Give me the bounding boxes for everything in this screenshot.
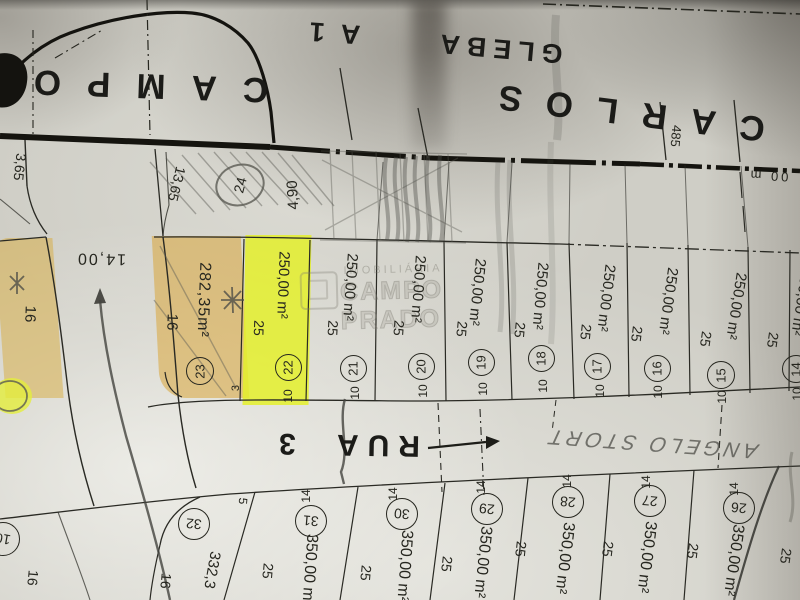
lot-15-side-25: 25 (697, 330, 715, 348)
lot-23-area-label: 282,35m² (193, 262, 214, 338)
corner-lot-number: 10 (0, 530, 12, 548)
lot-22-number: 22 (281, 360, 296, 374)
lot-21-side-25: 25 (325, 320, 342, 336)
lot-23-side-16-label: 16 (163, 313, 181, 330)
lot-15-front-10: 10 (715, 390, 729, 403)
lot-19-side-25: 25 (453, 321, 470, 338)
lot-29-number: 29 (479, 500, 496, 517)
lot-20-number-badge: 20 (408, 353, 435, 380)
lot-14-number: 14 (789, 362, 800, 376)
lot-30-number-badge: 30 (386, 498, 418, 530)
street-width-14-00-label: 14,00 (76, 249, 126, 268)
lot-32-number-badge: 32 (178, 508, 210, 540)
lot-27-number-badge: 27 (634, 485, 666, 517)
lot-31-number-badge: 31 (295, 505, 327, 537)
lot-17-number: 17 (590, 359, 605, 373)
lot-29-front-14: 14 (474, 480, 488, 493)
lot-14-side-25: 25 (764, 331, 782, 349)
lot-20-side-25: 25 (390, 320, 407, 337)
lot-31-number: 31 (303, 512, 320, 529)
lot-17-number-badge: 17 (584, 353, 611, 380)
lot-23-number-badge: 23 (186, 357, 214, 385)
lot-22-side-25: 25 (251, 320, 268, 336)
lot-28-number: 28 (560, 493, 577, 510)
lot-18-front-10: 10 (536, 379, 550, 392)
bottom-gap-25-4: 25 (512, 540, 530, 557)
lot-19-front-10: 10 (476, 382, 490, 395)
lot-24-dim-4-90: 4,90 (284, 180, 303, 210)
lot-29-number-badge: 29 (471, 493, 503, 525)
lot-31-front-14: 14 (299, 489, 313, 502)
lot-19-number: 19 (474, 355, 489, 369)
lot-28-number-badge: 28 (552, 486, 584, 518)
bottom-gap-25-1: 25 (259, 563, 276, 580)
lot-17-side-25: 25 (577, 323, 595, 340)
bottom-gap-25-2: 25 (357, 565, 374, 582)
watermark-logo-icon (300, 271, 339, 310)
watermark-line2: CAMPO PRADO (340, 273, 541, 336)
lot-30-number: 30 (394, 505, 411, 522)
lot-23-number: 23 (193, 364, 208, 378)
lot-15-number: 15 (714, 368, 729, 382)
lot-23-front-3-label: 3 (230, 385, 242, 391)
lot-27-number: 27 (642, 492, 659, 509)
lot-17-front-10: 10 (593, 384, 607, 397)
dim-00m-fragment: 00 m (747, 167, 789, 184)
dim-3-65-label: 3,65 (11, 153, 30, 182)
bottom-gap-25-6: 25 (684, 542, 702, 559)
lot-16-number-badge: 16 (644, 355, 671, 382)
bottom-gap-25-3: 25 (438, 555, 456, 572)
left-block-side-16-label: 16 (21, 305, 39, 322)
lot-18-side-25: 25 (511, 322, 528, 339)
lot-32-dim-5: 5 (236, 497, 251, 505)
lot-18-number-badge: 18 (528, 345, 555, 372)
bottom-gap-25-7: 25 (777, 547, 795, 565)
lot-32-number: 32 (186, 515, 203, 532)
lot-22-front-10: 10 (281, 389, 295, 402)
lot-22-number-badge: 22 (275, 354, 302, 381)
lot-20-front-10: 10 (416, 384, 430, 397)
lot-16-front-10: 10 (651, 385, 665, 398)
lot-26-number: 26 (731, 499, 748, 516)
lot-15-number-badge: 15 (707, 361, 735, 389)
lot-18-number: 18 (534, 351, 549, 365)
lot-21-number-badge: 21 (340, 355, 367, 382)
plat-map-photo: IMOBILIÁRIA CAMPO PRADO A1 GLEBA CAMPO C… (0, 0, 800, 600)
lot-19-number-badge: 19 (468, 349, 495, 376)
street-name-rua3: RUA 3 (270, 426, 420, 463)
lot-21-number: 21 (346, 361, 361, 375)
lot-32-side-16-a: 16 (157, 573, 174, 590)
gleba-num-label: A1 (293, 14, 362, 50)
lot-32-side-16-b: 16 (24, 570, 41, 587)
lot-14-front-10: 10 (790, 387, 800, 400)
lot-20-number: 20 (414, 359, 429, 373)
lot-22-area-label: 250,00 m² (273, 251, 292, 319)
dim-485-label: 485 (668, 125, 685, 148)
lot-21-front-10: 10 (348, 386, 362, 399)
lot-16-side-25: 25 (628, 325, 646, 342)
lot-16-number: 16 (650, 361, 665, 375)
lot-26-number-badge: 26 (723, 492, 755, 524)
bottom-gap-25-5: 25 (599, 540, 617, 557)
